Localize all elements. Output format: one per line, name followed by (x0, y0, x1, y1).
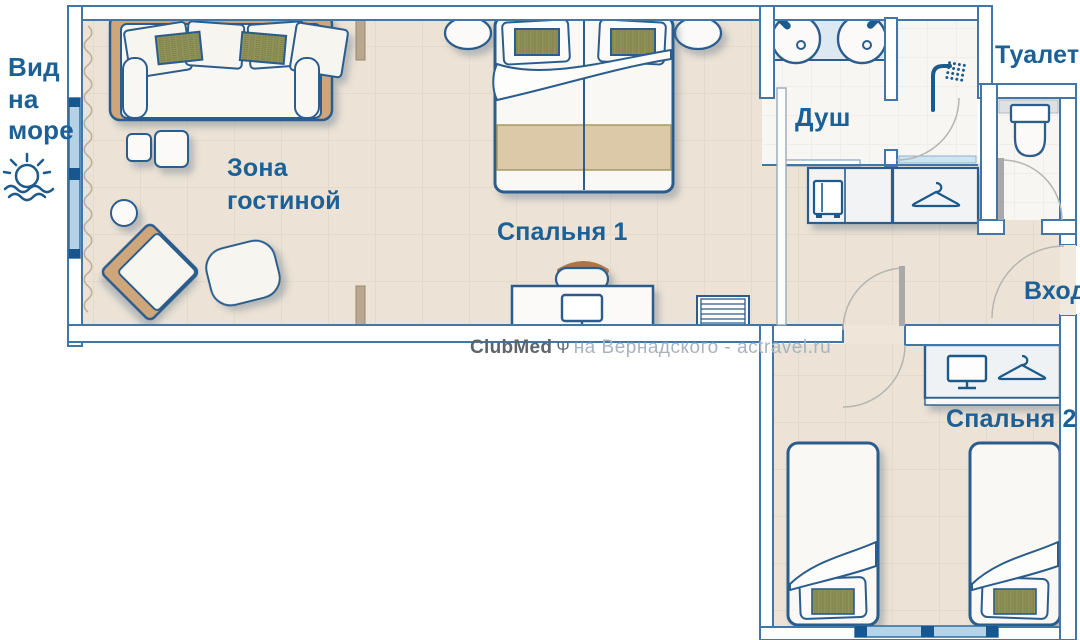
label-bedroom1: Спальня 1 (497, 217, 628, 248)
pillow-olive-twin-right (994, 589, 1036, 614)
nightstand-right (675, 17, 721, 49)
sofa-cushion-olive-right (240, 32, 286, 64)
coffee-tables (127, 131, 188, 167)
floor-entry-threshold (843, 325, 905, 345)
watermark-site: на Вернадского - actravel.ru (574, 337, 832, 358)
window-bedroom2 (855, 626, 998, 637)
nightstand-left (445, 17, 491, 49)
pillow-olive-left (515, 29, 559, 55)
watermark-brand: ClubMed (470, 337, 552, 358)
divider-strip-top (356, 16, 365, 60)
trident-logo-icon: Ψ (556, 340, 569, 357)
side-table-round (111, 200, 137, 226)
sofa-cushion-olive-left (156, 32, 203, 64)
watermark: ClubMedΨна Вернадского - actravel.ru (470, 337, 800, 359)
shower-threshold (899, 156, 976, 163)
label-bedroom2: Спальня 2 (946, 404, 1077, 435)
label-shower: Душ (795, 102, 851, 134)
sink-right (838, 15, 886, 63)
label-living-area: Зона гостиной (227, 152, 341, 217)
floorplan-page: Вид на море Зона гостиной Спальня 1 Душ … (0, 0, 1080, 640)
label-entrance: Вход (1024, 276, 1080, 307)
hall-door-leaf (899, 266, 905, 326)
divider-strip-bottom (356, 286, 365, 326)
toilet-door-leaf (998, 158, 1004, 220)
twin-bed-left (788, 443, 878, 625)
label-toilet: Туалет (995, 40, 1079, 71)
sofa (110, 14, 348, 120)
cabinet-bedroom2 (925, 345, 1060, 405)
desk (512, 286, 653, 328)
sun-waves-icon (4, 154, 53, 200)
pillow-olive-right (611, 29, 655, 55)
fridge-icon (814, 181, 842, 218)
minibar-counter (808, 168, 892, 223)
pillow-olive-twin-left (812, 589, 854, 614)
sliding-panel (777, 88, 786, 325)
wardrobe-counter (893, 168, 978, 223)
floorplan-drawing (0, 0, 1080, 640)
double-bed (493, 17, 673, 192)
twin-bed-right (970, 443, 1060, 625)
label-sea-view: Вид на море (8, 52, 74, 147)
